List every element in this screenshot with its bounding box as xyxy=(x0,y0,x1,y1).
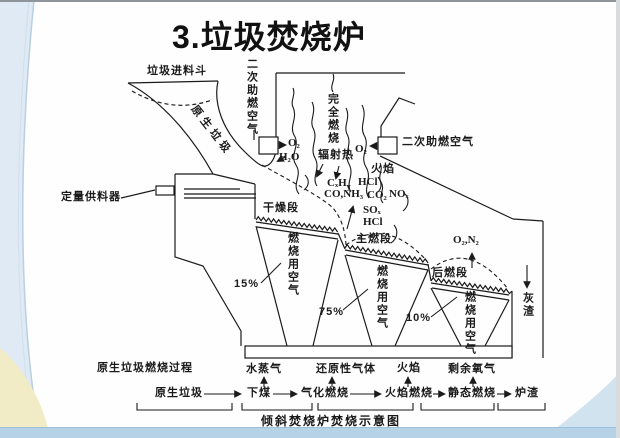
flow-stage-static-combustion: 静态燃烧 xyxy=(448,388,496,400)
secondary-air-label-right: 二次助燃空气 xyxy=(402,137,474,149)
section-main-label: 主燃段 xyxy=(356,234,392,246)
section-drying-label: 干燥段 xyxy=(263,203,299,215)
flow-stage-raw-waste: 原生垃圾 xyxy=(155,388,203,400)
combustion-air-label-1: 燃烧用空气 xyxy=(286,232,298,297)
complete-combustion-label: 完全燃烧 xyxy=(326,93,338,145)
air-percent-post: 10% xyxy=(406,313,431,325)
species-o2-left: O₂ xyxy=(288,138,300,150)
species-hcl-lower: HCl xyxy=(363,217,383,229)
species-o2-right: O₂ xyxy=(355,144,367,156)
flow-chart-brackets xyxy=(137,403,545,410)
combustion-air-label-2: 燃烧用空气 xyxy=(375,265,387,330)
emission-steam: 水蒸气 xyxy=(246,364,282,376)
emission-residual-oxygen: 剩余氧气 xyxy=(448,364,496,376)
diagram-caption: 倾斜焚烧炉焚烧示意图 xyxy=(261,412,401,429)
flow-stage-flame-combustion: 火焰燃烧 xyxy=(385,388,433,400)
ash-label: 灰渣 xyxy=(521,292,533,318)
species-h2o: H₂O xyxy=(279,152,299,164)
process-label: 原生垃圾燃烧过程 xyxy=(97,363,193,375)
species-hcl-upper: HCl xyxy=(358,177,378,189)
air-percent-main: 75% xyxy=(319,307,344,319)
feeder-label: 定量供料器 xyxy=(61,192,121,204)
species-nox: NOₓ xyxy=(389,189,409,201)
flow-stage-slag: 炉渣 xyxy=(515,388,539,400)
slide: 3.垃圾焚烧炉 倾斜焚烧炉焚烧示意图 垃圾进料斗 原生垃圾 定量供料器 二次助燃… xyxy=(0,0,620,438)
hopper-label: 垃圾进料斗 xyxy=(147,66,207,78)
species-co2: CO₂ xyxy=(367,190,387,202)
section-post-label: 后燃段 xyxy=(432,268,468,280)
air-percent-drying: 15% xyxy=(234,279,259,291)
species-sox: SOₓ xyxy=(363,205,381,217)
slide-title: 3.垃圾焚烧炉 xyxy=(172,12,366,58)
species-o2-n2: O₂,N₂ xyxy=(453,235,479,247)
flame-label: 火焰 xyxy=(371,164,395,176)
combustion-air-label-3: 燃烧用空气 xyxy=(463,291,475,356)
radiant-heat-label: 辐射热 xyxy=(318,150,354,162)
secondary-air-label-left: 二次助燃空气 xyxy=(245,58,257,136)
incinerator-diagram xyxy=(0,0,620,438)
emission-flame: 火焰 xyxy=(397,363,421,375)
emission-reducing-gas: 还原性气体 xyxy=(316,364,376,376)
flow-stage-feed: 下煤 xyxy=(247,388,271,400)
feeder-assembly xyxy=(121,174,256,346)
species-co-nh3: CO,NH₃ xyxy=(324,189,363,201)
flow-stage-gasification: 气化燃烧 xyxy=(301,388,349,400)
